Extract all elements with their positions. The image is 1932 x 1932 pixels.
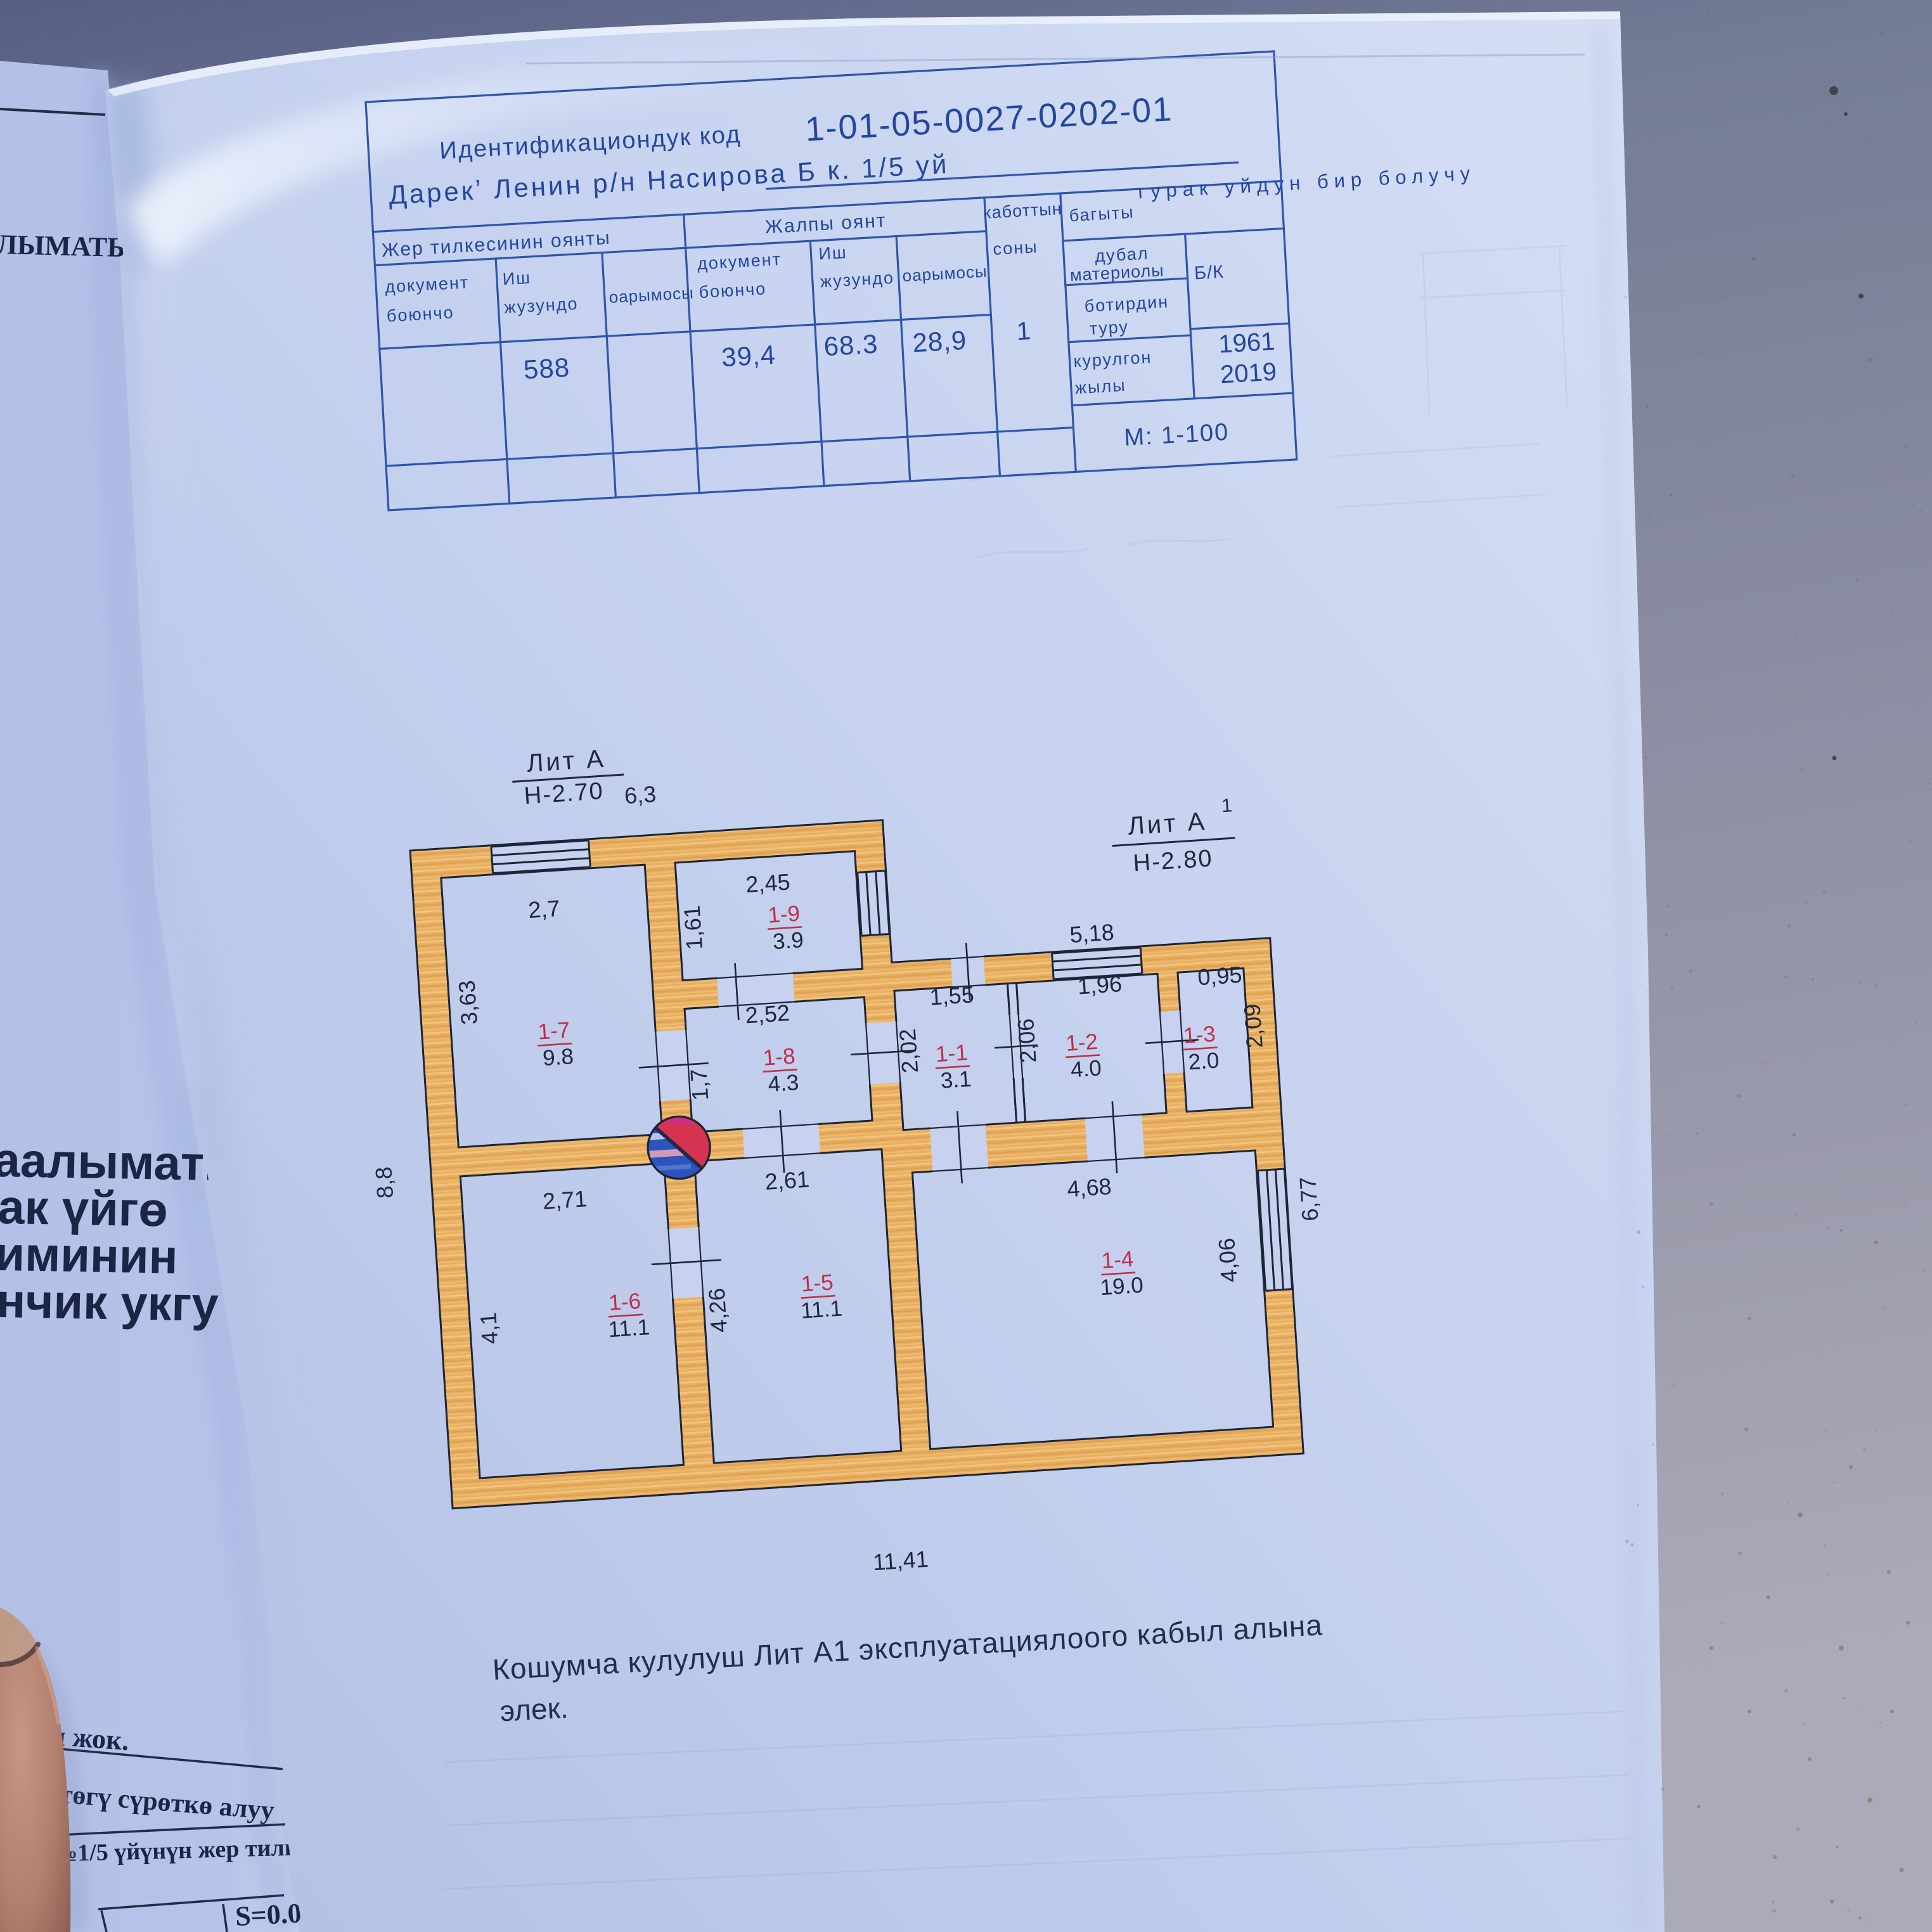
svg-text:1: 1 xyxy=(1221,795,1233,816)
svg-text:1-2: 1-2 xyxy=(1065,1029,1098,1056)
svg-text:2.0: 2.0 xyxy=(1188,1048,1220,1074)
svg-text:Б/К: Б/К xyxy=(1194,262,1225,284)
svg-text:1: 1 xyxy=(1016,317,1032,345)
svg-text:3.9: 3.9 xyxy=(772,927,804,954)
svg-text:Н-2.80: Н-2.80 xyxy=(1132,845,1214,877)
svg-text:3.1: 3.1 xyxy=(940,1067,972,1093)
svg-text:Н-2.70: Н-2.70 xyxy=(523,778,605,809)
svg-text:2,09: 2,09 xyxy=(1239,1003,1267,1049)
svg-text:1,96: 1,96 xyxy=(1077,970,1123,999)
svg-text:ЛЫМАТЫ: ЛЫМАТЫ xyxy=(0,229,135,264)
svg-text:1-5: 1-5 xyxy=(801,1270,834,1296)
svg-text:4,06: 4,06 xyxy=(1213,1237,1242,1284)
svg-text:жылы: жылы xyxy=(1074,376,1126,397)
svg-text:Лит А: Лит А xyxy=(526,745,607,778)
svg-text:туру: туру xyxy=(1089,317,1130,338)
svg-text:боюнчо: боюнчо xyxy=(386,303,454,326)
svg-text:4,68: 4,68 xyxy=(1066,1173,1112,1202)
svg-text:4,1: 4,1 xyxy=(475,1311,503,1345)
svg-text:9.8: 9.8 xyxy=(542,1044,574,1071)
svg-text:8,8: 8,8 xyxy=(370,1166,398,1199)
svg-text:68.3: 68.3 xyxy=(823,329,879,362)
svg-text:1,61: 1,61 xyxy=(679,905,707,951)
svg-text:1,55: 1,55 xyxy=(929,981,975,1010)
svg-text:11.1: 11.1 xyxy=(607,1315,650,1342)
svg-text:2,02: 2,02 xyxy=(894,1028,923,1074)
svg-text:0,95: 0,95 xyxy=(1197,962,1243,990)
svg-text:элек.: элек. xyxy=(499,1691,569,1728)
svg-text:1-7: 1-7 xyxy=(537,1017,570,1044)
svg-text:2,71: 2,71 xyxy=(542,1185,588,1214)
svg-text:28,9: 28,9 xyxy=(911,325,967,358)
svg-text:1-3: 1-3 xyxy=(1183,1022,1216,1048)
svg-text:Иш: Иш xyxy=(818,243,848,263)
svg-text:1-4: 1-4 xyxy=(1101,1247,1135,1273)
svg-text:6,77: 6,77 xyxy=(1294,1176,1323,1222)
svg-text:39,4: 39,4 xyxy=(721,340,776,373)
svg-text:2,7: 2,7 xyxy=(527,895,561,923)
svg-text:11,41: 11,41 xyxy=(872,1546,929,1576)
svg-text:2,61: 2,61 xyxy=(764,1166,811,1194)
svg-text:588: 588 xyxy=(523,352,571,385)
svg-text:1,7: 1,7 xyxy=(685,1068,713,1102)
svg-text:боюнчо: боюнчо xyxy=(699,279,767,302)
svg-text:2019: 2019 xyxy=(1220,357,1277,389)
svg-text:4,26: 4,26 xyxy=(704,1287,732,1334)
svg-text:2,45: 2,45 xyxy=(745,868,791,897)
svg-text:Лит А: Лит А xyxy=(1127,808,1207,840)
svg-text:1-6: 1-6 xyxy=(608,1289,641,1315)
svg-text:4.3: 4.3 xyxy=(767,1070,799,1097)
svg-text:2,52: 2,52 xyxy=(745,1000,791,1028)
svg-text:1-8: 1-8 xyxy=(763,1044,796,1071)
svg-text:11.1: 11.1 xyxy=(800,1296,843,1323)
svg-text:1-9: 1-9 xyxy=(767,901,801,928)
svg-text:Иш: Иш xyxy=(502,268,532,288)
svg-text:нчик укгу: нчик укгу xyxy=(0,1274,219,1332)
svg-text:1-1: 1-1 xyxy=(935,1040,969,1067)
svg-text:1961: 1961 xyxy=(1218,328,1275,359)
svg-text:4.0: 4.0 xyxy=(1070,1055,1102,1082)
svg-text:19.0: 19.0 xyxy=(1099,1273,1143,1300)
svg-text:багыты: багыты xyxy=(1069,203,1135,226)
svg-text:соны: соны xyxy=(993,237,1039,259)
svg-text:2,06: 2,06 xyxy=(1012,1018,1041,1064)
svg-text:5,18: 5,18 xyxy=(1069,919,1115,948)
svg-text:3,63: 3,63 xyxy=(453,979,482,1026)
svg-text:6,3: 6,3 xyxy=(624,781,657,809)
